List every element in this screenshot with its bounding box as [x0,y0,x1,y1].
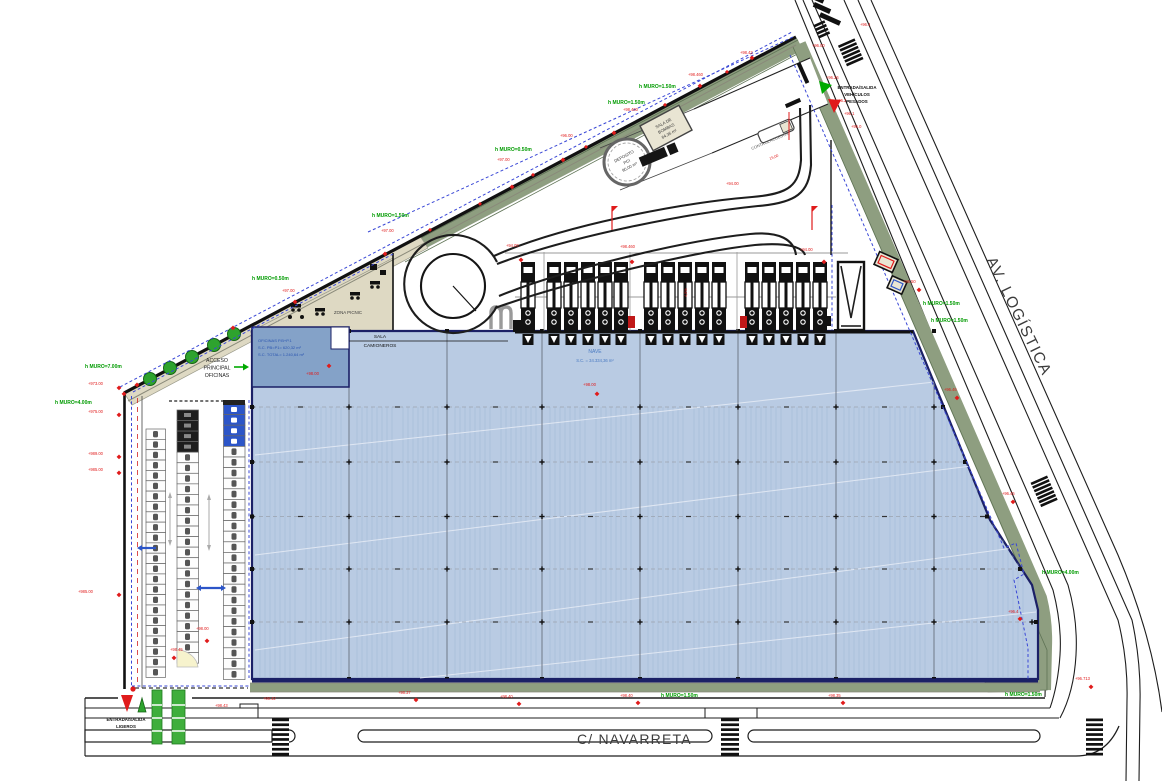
svg-text:h MURO=1.50m: h MURO=1.50m [931,318,968,324]
svg-text:PESADOS: PESADOS [846,99,868,104]
svg-text:4,5%: 4,5% [684,288,688,297]
svg-text:+98.37: +98.37 [398,690,411,695]
svg-text:C/ NAVARRETA: C/ NAVARRETA [577,731,692,747]
svg-text:h MURO=1.50m: h MURO=1.50m [661,693,698,699]
svg-text:+98.460: +98.460 [688,72,704,77]
svg-text:+975.00: +975.00 [88,409,104,414]
svg-text:h MURO=1.50m: h MURO=1.50m [923,301,960,307]
svg-text:+96.4: +96.4 [1008,609,1019,614]
svg-text:h MURO=4.00m: h MURO=4.00m [1042,570,1079,576]
svg-text:h MURO=1.50m: h MURO=1.50m [639,84,676,90]
svg-text:OFICINAS P.B+P.1: OFICINAS P.B+P.1 [258,338,293,343]
svg-text:PRINCIPAL: PRINCIPAL [203,366,230,372]
svg-text:LIGEROS: LIGEROS [116,724,136,729]
svg-text:+96.1: +96.1 [844,111,855,116]
svg-text:+94.00: +94.00 [726,181,739,186]
svg-text:+98.00: +98.00 [196,626,209,631]
svg-text:+98.40: +98.40 [500,694,513,699]
svg-text:+98.35: +98.35 [828,693,841,698]
svg-text:+96.4: +96.4 [860,22,871,27]
svg-text:h MURO=0.50m: h MURO=0.50m [252,276,289,282]
svg-text:+98.00: +98.00 [306,371,320,376]
svg-text:ACCESO: ACCESO [206,358,228,364]
svg-text:+96.45: +96.45 [1002,491,1015,496]
svg-text:+96.00: +96.00 [812,43,825,48]
svg-text:h MURO=4.00m: h MURO=4.00m [55,400,92,406]
svg-text:ENTRADA/SALIDA: ENTRADA/SALIDA [837,85,877,90]
svg-text:ZONA PICNIC: ZONA PICNIC [334,310,362,315]
svg-text:CAMIONEROS: CAMIONEROS [364,343,397,349]
svg-text:OFICINAS: OFICINAS [205,373,230,379]
svg-text:+98.42: +98.42 [263,696,276,701]
svg-text:+97.00: +97.00 [282,288,295,293]
svg-text:+96.713: +96.713 [1075,676,1091,681]
svg-text:S.C. PB=P1= 620,32 m²: S.C. PB=P1= 620,32 m² [258,345,302,350]
svg-text:+98.40: +98.40 [620,693,633,698]
svg-text:+98.460: +98.460 [620,244,636,249]
svg-text:+97.00: +97.00 [497,157,510,162]
svg-text:h MURO=0.50m: h MURO=0.50m [495,147,532,153]
svg-text:+97.00: +97.00 [381,228,394,233]
svg-text:+96.0: +96.0 [851,124,862,129]
svg-text:+96.00: +96.00 [560,133,573,138]
svg-text:+94.00: +94.00 [800,247,813,252]
svg-text:S.C. = 34.334,36 m²: S.C. = 34.334,36 m² [576,358,614,363]
svg-text:h MURO=1.50m: h MURO=1.50m [1005,692,1042,698]
svg-text:+94.00: +94.00 [506,243,519,248]
svg-text:+98.460: +98.460 [623,107,639,112]
svg-text:+98.45: +98.45 [170,647,183,652]
svg-text:h MURO=1.50m: h MURO=1.50m [608,100,645,106]
svg-text:+96.2: +96.2 [836,98,847,103]
svg-text:+96.46: +96.46 [944,387,957,392]
svg-text:+985.00: +985.00 [88,467,104,472]
svg-text:S.C. TOTAL= 1.240,64 m²: S.C. TOTAL= 1.240,64 m² [258,352,305,357]
svg-text:VEHÍCULOS: VEHÍCULOS [844,92,870,97]
svg-text:+96.26: +96.26 [826,75,839,80]
svg-text:+98.43: +98.43 [215,703,228,708]
svg-text:+96.50: +96.50 [903,279,916,284]
svg-text:+98.42: +98.42 [740,50,753,55]
svg-text:h MURO=7.00m: h MURO=7.00m [85,364,122,370]
svg-text:+98.00: +98.00 [583,382,597,387]
svg-text:NAVE: NAVE [588,349,602,355]
svg-text:ENTRADA/SALIDA: ENTRADA/SALIDA [106,717,146,722]
svg-text:SALA: SALA [374,334,387,340]
svg-text:h MURO=1.50m: h MURO=1.50m [372,213,409,219]
svg-text:+985.00: +985.00 [78,589,94,594]
svg-text:+973.00: +973.00 [88,381,104,386]
svg-text:+989.00: +989.00 [88,451,104,456]
